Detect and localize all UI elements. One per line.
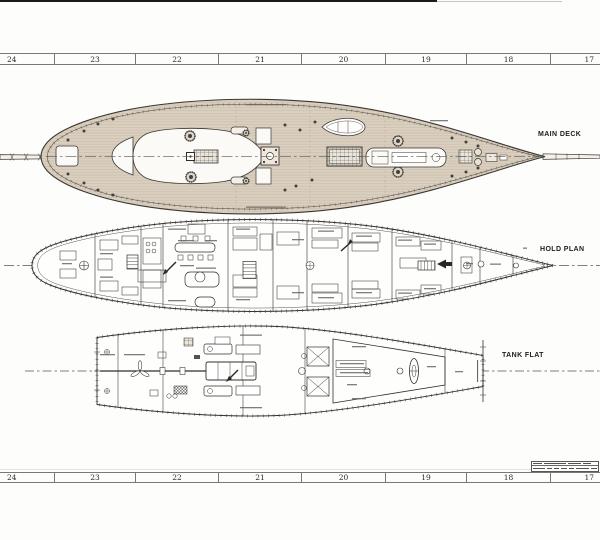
- micro-text: [100, 354, 115, 355]
- steering-gear: [80, 261, 89, 270]
- winch-gear: [393, 167, 403, 177]
- fitting-circle: [306, 262, 314, 270]
- vent-dot: [284, 124, 287, 127]
- micro-text: [356, 236, 372, 237]
- vent-dot: [112, 194, 115, 197]
- micro-text: [424, 244, 436, 245]
- fitting-circle: [514, 263, 519, 268]
- tank-flat-plan: TANK FLAT: [25, 325, 600, 418]
- stairs: [127, 255, 138, 269]
- micro-text: [124, 354, 145, 355]
- vent-dot: [299, 129, 302, 132]
- micro-text: [236, 229, 250, 230]
- bowsprit: [543, 153, 600, 159]
- hold-plan: HOLD PLAN: [4, 219, 600, 313]
- micro-text: [318, 231, 334, 232]
- micro-text: [398, 293, 412, 294]
- micro-text: [340, 363, 364, 364]
- micro-text: [205, 240, 217, 241]
- vent-dot: [451, 137, 454, 140]
- drawing-sheet: 2423222120191817 2423222120191817: [0, 0, 600, 540]
- winch-gear: [243, 178, 249, 184]
- micro-text: [427, 366, 436, 367]
- micro-text: [347, 384, 357, 385]
- micro-text: [62, 263, 72, 264]
- winch-gear: [243, 130, 249, 136]
- aft-companionway: [56, 146, 78, 166]
- vent-dot: [112, 118, 115, 121]
- micro-text: [356, 292, 372, 293]
- skylight-small: [256, 168, 271, 184]
- micro-text: [246, 104, 286, 105]
- drawing-svg: MAIN DECK: [0, 0, 600, 540]
- vent-dot: [477, 167, 480, 170]
- main-deck-label: MAIN DECK: [538, 131, 581, 138]
- micro-text: [352, 346, 366, 347]
- micro-text: [178, 240, 194, 241]
- main-deck-plan: MAIN DECK: [0, 99, 600, 214]
- vent-dot: [314, 121, 317, 124]
- vent-dot: [477, 145, 480, 148]
- micro-text: [430, 120, 448, 121]
- fitting-circle: [478, 261, 484, 267]
- stairs: [243, 262, 256, 279]
- micro-text: [340, 372, 368, 373]
- winch-gear: [185, 131, 195, 141]
- skylight-small: [256, 128, 271, 144]
- vent-dot: [451, 175, 454, 178]
- winch-gear: [393, 136, 403, 146]
- foredeck-trunk: [366, 148, 446, 167]
- micro-text: [292, 239, 304, 240]
- micro-text: [236, 299, 250, 300]
- micro-text: [352, 398, 366, 399]
- vent-dot: [83, 182, 86, 185]
- vent-dot: [97, 189, 100, 192]
- winch-gear: [186, 172, 196, 182]
- micro-text: [240, 335, 262, 336]
- micro-text: [318, 297, 334, 298]
- tank-flat-label: TANK FLAT: [502, 352, 544, 359]
- micro-text: [455, 371, 463, 372]
- micro-text: [100, 277, 113, 278]
- micro-text: [490, 264, 501, 265]
- stairs: [418, 261, 435, 270]
- vertical-micro-text: [477, 360, 478, 382]
- micro-text: [398, 240, 412, 241]
- vent-dot: [67, 173, 70, 176]
- vent-dot: [67, 139, 70, 142]
- micro-text: [168, 300, 186, 301]
- micro-text: [240, 407, 262, 408]
- micro-text: [523, 248, 527, 249]
- hold-hull: [32, 220, 553, 312]
- fitting-circle: [544, 264, 547, 267]
- micro-text: [196, 268, 216, 269]
- vent-dot: [284, 189, 287, 192]
- vent-dot: [465, 171, 468, 174]
- vent-dot: [295, 185, 298, 188]
- vent-dot: [97, 123, 100, 126]
- micro-text: [292, 292, 304, 293]
- vent-dot: [465, 141, 468, 144]
- vent-dot: [83, 130, 86, 133]
- micro-text: [246, 207, 286, 208]
- micro-text: [168, 229, 186, 230]
- micro-text: [466, 263, 473, 264]
- vent-dot: [311, 179, 314, 182]
- mast-fife-rail: [261, 147, 279, 165]
- micro-text: [100, 253, 113, 254]
- micro-text: [424, 288, 436, 289]
- micro-text: [180, 265, 194, 266]
- hold-plan-label: HOLD PLAN: [540, 246, 584, 253]
